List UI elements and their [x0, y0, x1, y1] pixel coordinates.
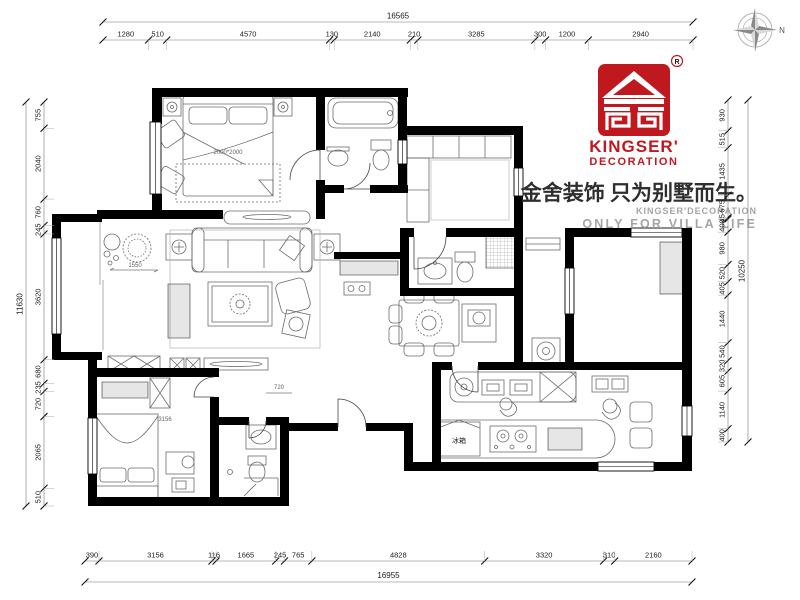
bedroom-2-furniture: [96, 378, 194, 498]
dim-label: 515: [718, 133, 727, 146]
dim-label: 980: [718, 242, 727, 255]
dim-label: 2940: [632, 30, 649, 39]
passage-width-label: 720: [274, 385, 285, 391]
dim-label: 405: [718, 282, 727, 295]
dim-label: 930: [718, 109, 727, 122]
dining-room-furniture: [389, 290, 496, 356]
kitchen-sink: [455, 378, 473, 396]
toilet: [455, 252, 475, 262]
dim-label: 235: [34, 381, 43, 394]
dim-label: 510: [151, 30, 164, 39]
dim-label: 2040: [34, 155, 43, 172]
bathroom-1: [327, 98, 398, 170]
dim-label: 400: [718, 219, 727, 232]
dim-label: 520: [718, 267, 727, 280]
floor-plan-page: 2000*2000 1550 3156 720 冰箱 N R KINGSER' …: [0, 0, 800, 600]
floor-plan-svg: 2000*2000 1550 3156 720 冰箱 N R KINGSER' …: [0, 0, 800, 600]
dim-label: 765: [292, 551, 305, 560]
dim-label: 1200: [559, 30, 576, 39]
dim-label: 2160: [645, 551, 662, 560]
hallway-cabinet: [660, 242, 684, 294]
desk: [166, 452, 194, 474]
shower: [486, 236, 516, 268]
dim-label: 1280: [117, 30, 134, 39]
dim-label: 1440: [718, 311, 727, 328]
person-figure: [602, 399, 620, 419]
dim-label: 1665: [238, 551, 255, 560]
dim-label: 760: [34, 206, 43, 219]
bed: [96, 414, 158, 498]
rug: [170, 230, 320, 348]
dimension-chain-right: 9305151435675454009805204051440540320605…: [718, 97, 752, 446]
walk-in-closet: [407, 136, 511, 222]
dim-label: 130: [326, 30, 339, 39]
brand-name-line1: KINGSER': [589, 137, 679, 156]
dim-label: 720: [34, 398, 43, 411]
fridge-label: 冰箱: [452, 436, 466, 445]
balcony-width-label: 1550: [128, 263, 142, 269]
master-bedroom-furniture: [154, 96, 292, 202]
dim-label: 310: [603, 551, 616, 560]
bedroom-width-label: 3156: [158, 417, 172, 423]
coffee-table: [208, 282, 272, 326]
dim-label: 3285: [468, 30, 485, 39]
dimension-chain-left: 75520407602453620680235720206551011630: [16, 99, 55, 510]
compass-icon: N: [733, 8, 785, 52]
toilet: [248, 456, 266, 465]
dim-label: 300: [534, 30, 547, 39]
plants: [104, 234, 151, 265]
bathroom-2: [418, 236, 516, 284]
brand-subline1: KINGSER'DECORATION: [636, 206, 757, 216]
dim-label: 3320: [536, 551, 553, 560]
dim-label: 510: [34, 491, 43, 504]
dim-label: 16955: [377, 571, 400, 580]
dim-label: 3620: [34, 289, 43, 306]
person-figure: [500, 398, 517, 416]
toilet: [371, 140, 391, 150]
registered-mark: R: [674, 59, 679, 66]
dim-label: 675: [718, 200, 727, 213]
dim-label: 16565: [387, 12, 410, 21]
sofa: [192, 228, 312, 272]
dim-label: 755: [34, 109, 43, 122]
dim-label: 4570: [240, 30, 257, 39]
master-bed: [183, 96, 273, 196]
sink: [328, 150, 348, 166]
sink: [246, 425, 276, 449]
dim-label: 605: [718, 375, 727, 388]
kitchen-furniture: [436, 372, 652, 458]
dim-label: 390: [86, 551, 99, 560]
living-room-furniture: [100, 211, 398, 372]
dim-label: 400: [718, 429, 727, 442]
dim-label: 1140: [718, 402, 727, 418]
dim-label: 10250: [738, 259, 747, 282]
dim-label: 680: [34, 365, 43, 378]
dim-label: 210: [408, 30, 421, 39]
bed-size-label: 2000*2000: [213, 150, 243, 156]
laundry: [526, 238, 560, 364]
dimension-chain-top: 1280510457013021402103285300120029401656…: [100, 12, 697, 51]
dim-label: 4828: [390, 551, 407, 560]
dim-label: 11630: [16, 293, 25, 315]
dim-label: 245: [34, 223, 43, 236]
bathroom-3: [228, 425, 279, 496]
dim-label: 1435: [718, 163, 727, 180]
dimension-chain-bottom: 3903156116166524576548283320310216016955: [82, 551, 696, 586]
brand-name-line2: DECORATION: [589, 156, 678, 168]
dim-label: 540: [718, 345, 727, 358]
dim-label: 2065: [34, 444, 43, 461]
compass-north-label: N: [779, 26, 785, 35]
dim-label: 3156: [147, 551, 164, 560]
stove: [490, 426, 536, 452]
dim-label: 320: [718, 360, 727, 373]
windows: [52, 122, 692, 474]
dining-table: [399, 300, 459, 346]
dim-label: 2140: [364, 30, 381, 39]
